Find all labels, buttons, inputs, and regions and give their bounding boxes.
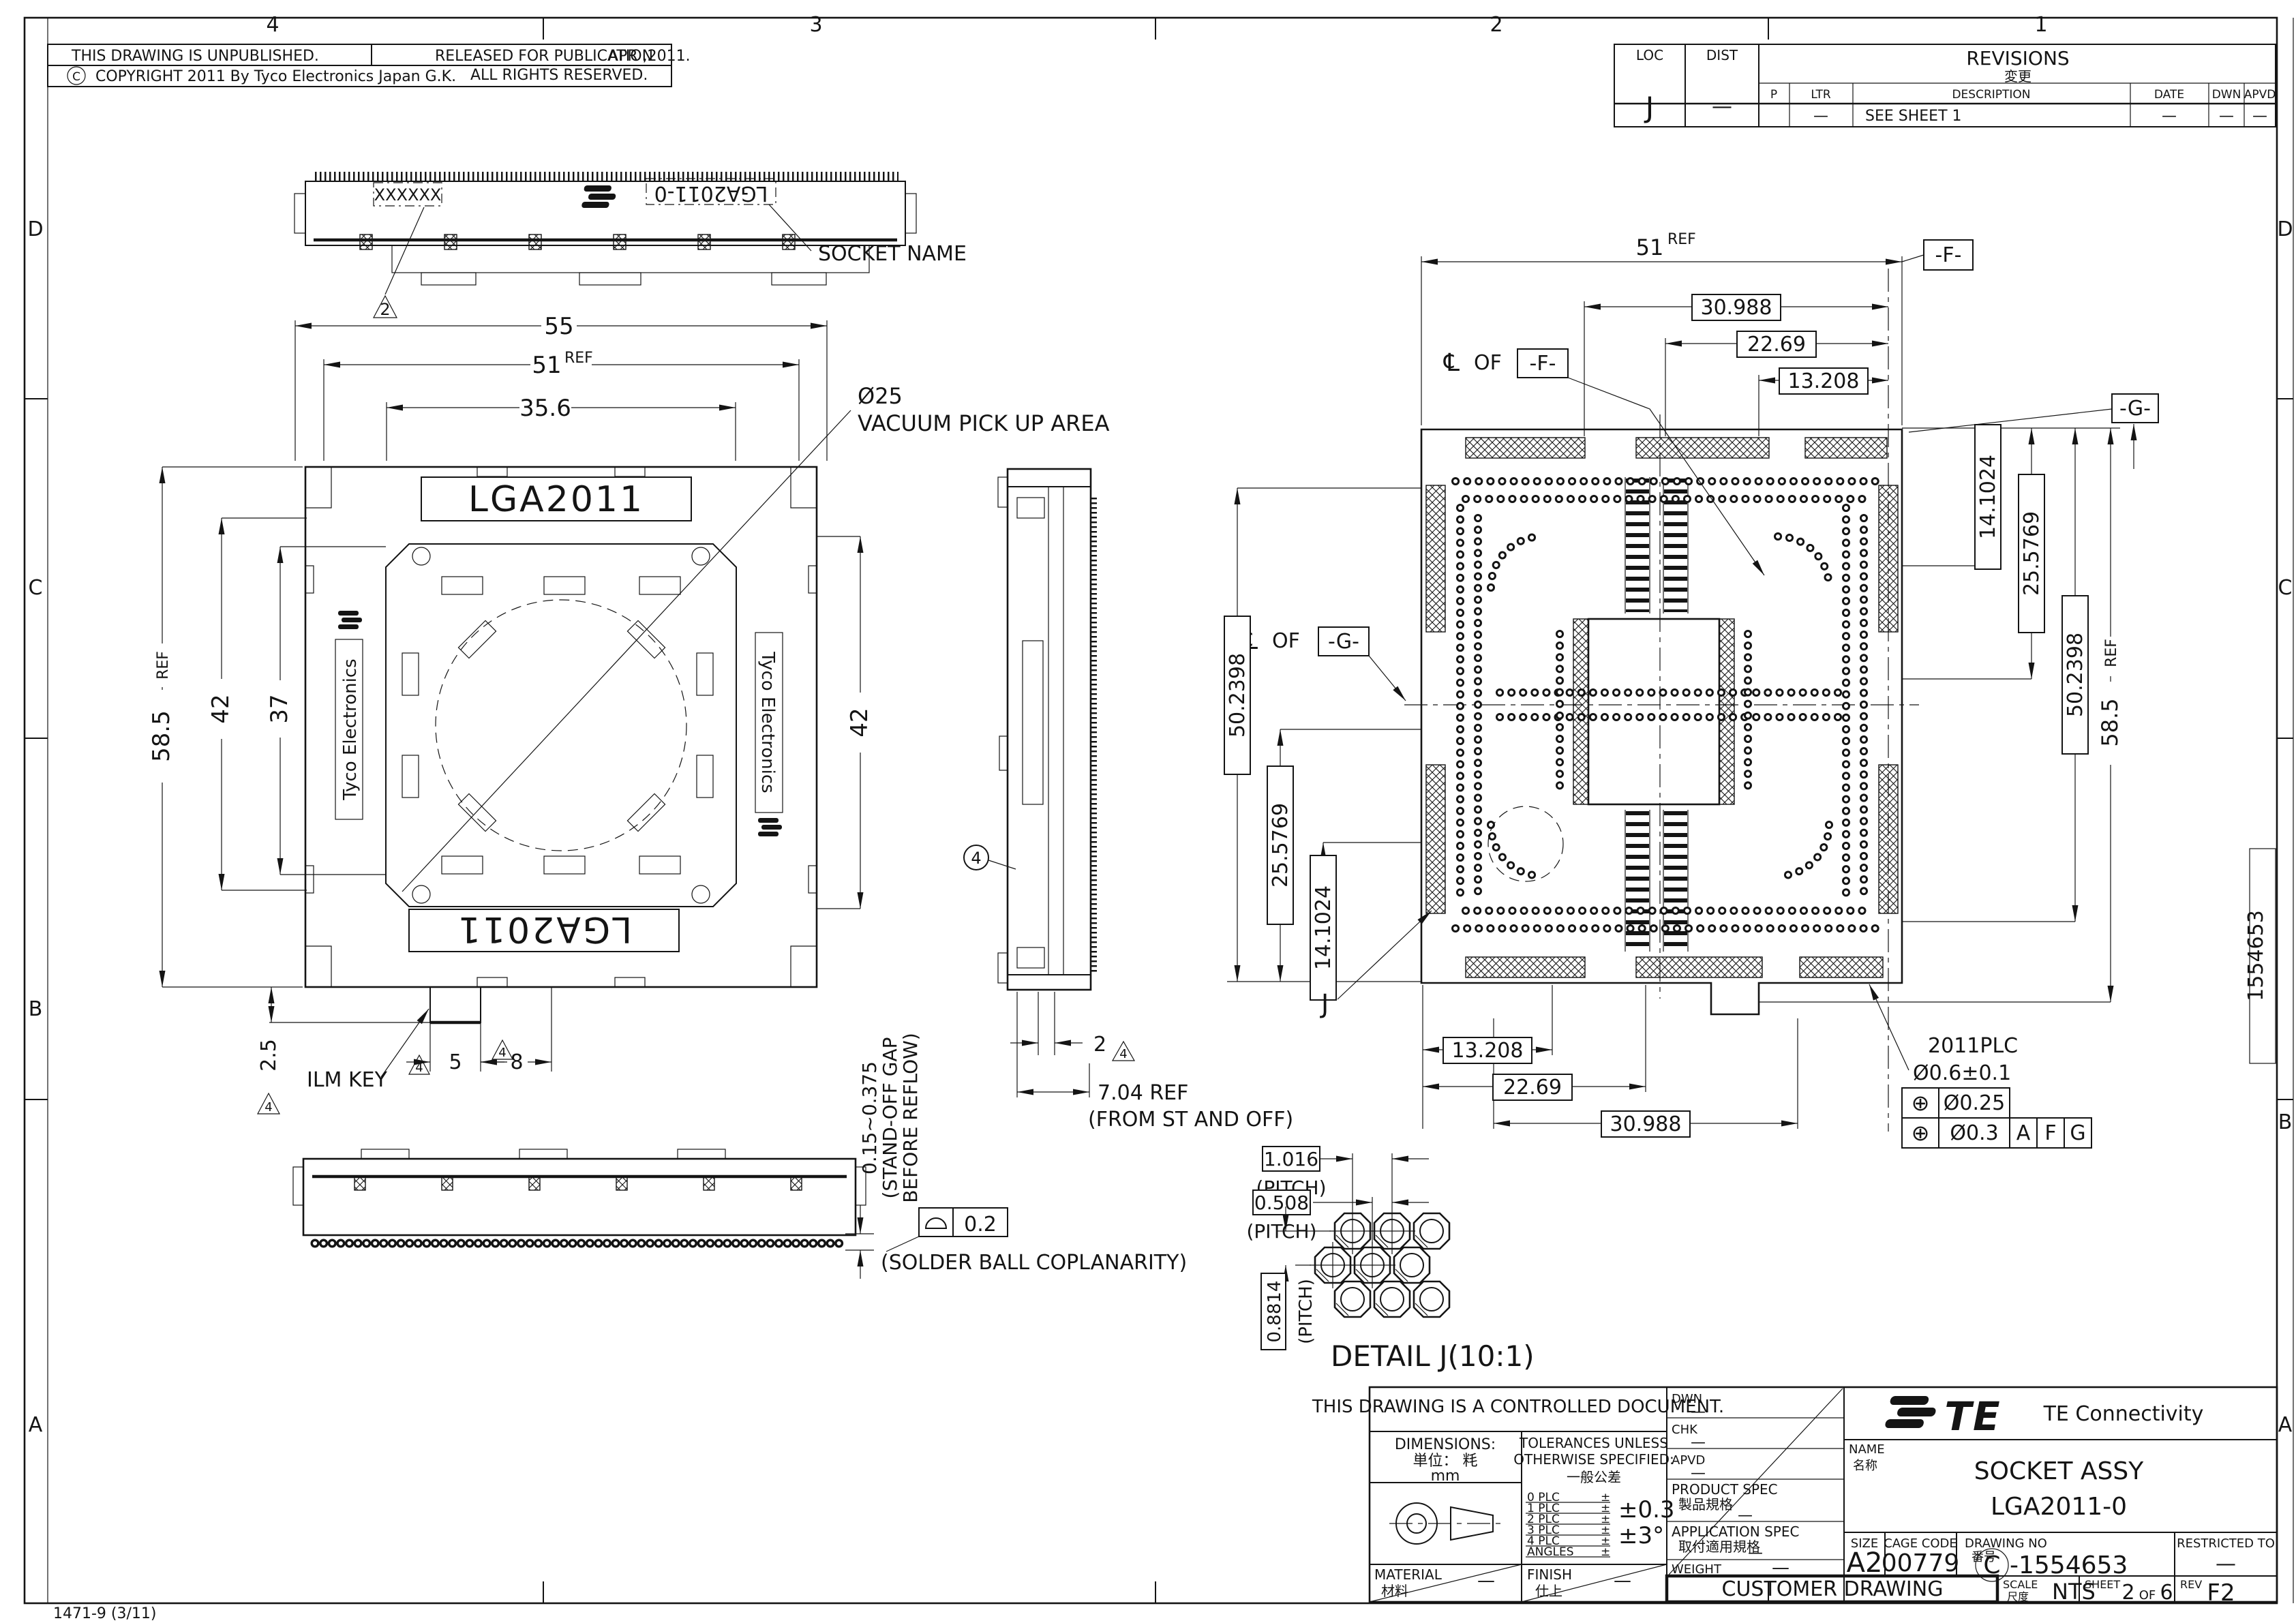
- standoff-range: 0.15~0.375: [858, 1061, 881, 1174]
- restricted-to-value: —: [2216, 1552, 2236, 1576]
- position-fcf: ⊕ Ø0.25 ⊕ Ø0.3 A F G: [1902, 1088, 2091, 1148]
- application-spec-value: —: [1748, 1545, 1763, 1562]
- pin-count-note: 2011PLC: [1928, 1034, 2018, 1058]
- product-spec-value: —: [1738, 1507, 1753, 1524]
- sheet-of: OF: [2139, 1588, 2156, 1603]
- tolerances-line-1: TOLERANCES UNLESS: [1519, 1435, 1668, 1451]
- sheet-number: 2: [2121, 1581, 2134, 1605]
- weight-value: —: [1772, 1558, 1789, 1578]
- pitch-08814: 0.8814: [1265, 1281, 1285, 1343]
- detail-j-pads: [1310, 1208, 1449, 1317]
- view-detail-j: 1.016 (PITCH) 0.508 (PITCH) 0.8814 (PITC…: [1246, 1147, 1534, 1373]
- dim-bottom-width: 51: [1636, 234, 1664, 260]
- dist-value: —: [1712, 95, 1732, 119]
- weight-label: WEIGHT: [1672, 1562, 1722, 1577]
- standoff-note-1: (STAND-OFF GAP: [879, 1037, 901, 1198]
- col-p: P: [1770, 88, 1777, 102]
- rev-row-ltr: —: [1813, 108, 1828, 125]
- zone-right-c: C: [2278, 576, 2293, 600]
- finish-value: —: [1614, 1571, 1631, 1591]
- application-spec-label: APPLICATION SPEC: [1672, 1523, 1799, 1540]
- tolerances-jp: 一般公差: [1567, 1469, 1621, 1485]
- detail-j-title: DETAIL J(10:1): [1331, 1339, 1535, 1373]
- brand-name: TE Connectivity: [2043, 1402, 2204, 1426]
- view-bottom: 51 REF -F- 30.988 22.69 13.208 ℄ OF -F- …: [1224, 231, 2158, 1148]
- revisions-title-jp: 変更: [2004, 68, 2031, 85]
- margin-drawing-number: 1554653: [2244, 910, 2268, 1001]
- datum-ref-f: F: [2044, 1121, 2056, 1145]
- finish-jp: 仕上: [1535, 1583, 1562, 1599]
- zone-left-d: D: [27, 217, 43, 241]
- loc-value: J: [1644, 91, 1654, 124]
- dim-top-13208: 13.208: [1788, 369, 1860, 393]
- dim-overall-width: 55: [544, 313, 573, 340]
- svg-text:±: ±: [1601, 1545, 1610, 1559]
- drawing-no-prefix: C: [1983, 1551, 2000, 1579]
- dwn-value: —: [1691, 1404, 1706, 1421]
- cl-of-g-label: OF: [1272, 629, 1300, 653]
- pitch-1016: 1.016: [1264, 1148, 1318, 1170]
- dim-right-height-42: 42: [846, 708, 873, 737]
- dim-right-502398: 50.2398: [2064, 633, 2087, 717]
- datum-ref-g: G: [2070, 1121, 2085, 1145]
- dim-overall-height: 58.5: [148, 710, 175, 762]
- scale-jp: 尺度: [2007, 1590, 2029, 1603]
- ilm-key-label: ILM KEY: [307, 1068, 388, 1092]
- rev-row-apvd: —: [2252, 108, 2267, 125]
- drawing-canvas: 4 3 2 1 D C B A D C B A 1471-9 (3/11) 15…: [0, 0, 2296, 1623]
- cl-of-f-datum: -F-: [1530, 352, 1556, 376]
- cl-of-f-label: OF: [1474, 351, 1502, 375]
- pitch-label: (PITCH): [1296, 1279, 1316, 1344]
- delta-note-4: 4: [498, 1046, 506, 1060]
- lga-marking-top: LGA2011: [468, 479, 644, 520]
- drawing-no-value: -1554653: [2010, 1551, 2128, 1579]
- datum-f: -F-: [1935, 243, 1962, 267]
- view-front: LGA2011 LGA2011 Tyco Electronics Tyco El…: [148, 313, 1110, 1114]
- copyright-symbol: C: [72, 70, 80, 84]
- controlled-document-note: THIS DRAWING IS A CONTROLLED DOCUMENT.: [1312, 1397, 1724, 1417]
- brand-label-right: Tyco Electronics: [757, 651, 778, 793]
- dim-overall-height-ref: REF: [155, 651, 172, 680]
- dim-bot-30988: 30.988: [1610, 1112, 1682, 1136]
- copyright-note: COPYRIGHT 2011 By Tyco Electronics Japan…: [95, 68, 456, 85]
- datum-g: -G-: [2119, 397, 2151, 421]
- lga-marking-bottom: LGA2011: [456, 909, 632, 950]
- te-logo-icon: [581, 185, 618, 208]
- zone-right-b: B: [2278, 1110, 2293, 1134]
- dim-bot-2269: 22.69: [1503, 1076, 1562, 1099]
- revisions-title: REVISIONS: [1966, 47, 2069, 70]
- coplanarity-note: (SOLDER BALL COPLANARITY): [881, 1251, 1187, 1275]
- dim-body-width: 51: [532, 352, 561, 379]
- zone-left-c: C: [29, 576, 43, 600]
- size-value: A2: [1847, 1547, 1883, 1579]
- delta-note-4: 4: [415, 1061, 423, 1075]
- finish-label: FINISH: [1527, 1566, 1572, 1583]
- rev-value: F2: [2207, 1579, 2235, 1607]
- dim-pin-offset: 2: [1093, 1033, 1106, 1057]
- dim-left-141024: 14.1024: [1312, 885, 1335, 970]
- dim-bottom-width-ref: REF: [1667, 231, 1696, 248]
- dimensions-label: DIMENSIONS:: [1395, 1436, 1496, 1453]
- cl-of-g-datum: -G-: [1328, 630, 1359, 654]
- tol-angle-value: ±3°: [1618, 1522, 1664, 1549]
- view-top-marking: XXXXXX LGA2011-0 SOCKET NAME 2: [294, 177, 967, 319]
- dim-height-42: 42: [207, 694, 235, 723]
- apvd-value: —: [1691, 1465, 1706, 1482]
- product-spec-label: PRODUCT SPEC: [1672, 1481, 1778, 1498]
- col-description: DESCRIPTION: [1952, 88, 2030, 102]
- delta-note-2: 2: [380, 300, 390, 319]
- position-symbol-icon: ⊕: [1912, 1090, 1930, 1116]
- scale-label: SCALE: [2003, 1578, 2038, 1591]
- marking-socket-name: LGA2011-0: [654, 181, 768, 205]
- dim-right-585-ref: REF: [2103, 639, 2120, 667]
- header-block: THIS DRAWING IS UNPUBLISHED. RELEASED FO…: [48, 44, 691, 87]
- dim-left-255769: 25.5769: [1269, 803, 1293, 888]
- form-number: 1471-9 (3/11): [53, 1605, 157, 1622]
- detail-j-ref: J: [1320, 989, 1329, 1019]
- dim-top-30988: 30.988: [1701, 296, 1772, 320]
- col-ltr: LTR: [1811, 88, 1831, 102]
- sheet-label: SHEET: [2085, 1578, 2120, 1591]
- centerline-symbol: ℄: [1443, 349, 1460, 377]
- loc-label: LOC: [1636, 47, 1663, 63]
- rev-row-dwn: —: [2219, 108, 2234, 125]
- dim-key-w1: 5: [449, 1050, 462, 1074]
- te-logo-icon: [338, 611, 362, 629]
- dim-bot-13208: 13.208: [1452, 1039, 1524, 1063]
- col-dwn: DWN: [2212, 88, 2241, 102]
- rev-row-date: —: [2162, 108, 2177, 125]
- part-name-line1: SOCKET ASSY: [1974, 1457, 2144, 1485]
- third-angle-projection-icon: [1389, 1503, 1503, 1544]
- tol-row-5: ANGLES: [1527, 1545, 1574, 1559]
- dim-pick-width: 35.6: [519, 395, 571, 422]
- zone-right-a: A: [2278, 1413, 2293, 1437]
- rights-note: ALL RIGHTS RESERVED.: [470, 67, 648, 84]
- dimensions-unit: mm: [1431, 1468, 1460, 1485]
- material-label: MATERIAL: [1374, 1566, 1442, 1583]
- dim-key-height: 2.5: [257, 1039, 281, 1072]
- zone-top-2: 2: [1490, 13, 1502, 37]
- te-logo-text: TE: [1944, 1393, 2001, 1440]
- dim-standoff: 7.04 REF: [1098, 1081, 1188, 1105]
- col-date: DATE: [2154, 88, 2184, 102]
- zone-top-1: 1: [2034, 13, 2047, 37]
- datum-ref-a: A: [2016, 1121, 2031, 1145]
- dim-height-37: 37: [266, 694, 293, 723]
- coplanarity-value: 0.2: [964, 1213, 997, 1237]
- customer-drawing-label: CUSTOMER DRAWING: [1722, 1577, 1944, 1601]
- material-value: —: [1477, 1571, 1495, 1591]
- dim-standoff-note: (FROM ST AND OFF): [1088, 1108, 1293, 1132]
- zone-top-4: 4: [266, 13, 279, 37]
- brand-label-left: Tyco Electronics: [340, 658, 361, 800]
- zone-left-b: B: [29, 997, 43, 1021]
- te-logo: TE: [1884, 1393, 2001, 1440]
- col-apvd: APVD: [2244, 88, 2276, 102]
- te-logo-icon: [758, 818, 782, 836]
- restricted-to-label: RESTRICTED TO: [2177, 1536, 2275, 1551]
- dim-body-width-ref: REF: [564, 350, 593, 367]
- dim-left-502398: 50.2398: [1226, 653, 1250, 738]
- dim-right-255769: 25.5769: [2020, 511, 2044, 596]
- pitch-0508: 0.508: [1254, 1192, 1309, 1214]
- title-block: THIS DRAWING IS A CONTROLLED DOCUMENT. D…: [1312, 1387, 2277, 1607]
- position-tol-2: Ø0.3: [1950, 1121, 1998, 1145]
- delta-note-4: 4: [265, 1100, 272, 1114]
- view-side: 4 2 4 7.04 REF (FROM ST AND OFF): [964, 469, 1293, 1132]
- material-jp: 材料: [1381, 1583, 1408, 1599]
- zone-right-d: D: [2277, 217, 2293, 241]
- tol-general-value: ±0.3: [1618, 1496, 1675, 1523]
- position-tol-1: Ø0.25: [1944, 1091, 2005, 1115]
- rev-label: REV: [2180, 1578, 2202, 1591]
- rev-row-description: SEE SHEET 1: [1865, 108, 1962, 125]
- unpublished-note: THIS DRAWING IS UNPUBLISHED.: [71, 48, 319, 65]
- revisions-block: LOC J DIST — REVISIONS 変更 P LTR DESCRIPT…: [1614, 44, 2276, 127]
- dim-right-585: 58.5: [2097, 698, 2123, 746]
- dim-top-2269: 22.69: [1747, 333, 1806, 357]
- zone-top-3: 3: [809, 13, 822, 37]
- release-date: APR ,2011.: [608, 48, 691, 65]
- balloon-4: 4: [971, 849, 981, 868]
- part-name-line2: LGA2011-0: [1991, 1493, 2127, 1521]
- chk-value: —: [1691, 1434, 1706, 1451]
- drawing-no-label: DRAWING NO: [1965, 1536, 2047, 1551]
- position-symbol-icon: ⊕: [1912, 1120, 1930, 1146]
- pick-dia-label: Ø25: [858, 383, 903, 409]
- cage-code-label: CAGE CODE: [1884, 1536, 1957, 1551]
- hole-size-note: Ø0.6±0.1: [1913, 1061, 2011, 1085]
- name-jp: 名称: [1853, 1459, 1877, 1473]
- center-cavity: [1588, 619, 1719, 804]
- sheet-total: 6: [2160, 1581, 2173, 1605]
- name-label: NAME: [1849, 1442, 1885, 1457]
- product-spec-jp: 製品規格: [1678, 1496, 1733, 1513]
- tolerances-line-2: OTHERWISE SPECIFIED:: [1513, 1451, 1674, 1468]
- pick-area-label: VACUUM PICK UP AREA: [858, 410, 1110, 436]
- dist-label: DIST: [1706, 47, 1738, 63]
- zone-left-a: A: [29, 1413, 43, 1437]
- cage-code-value: 00779: [1882, 1549, 1960, 1577]
- dim-key-w2: 8: [510, 1050, 523, 1074]
- marking-xxxxxx: XXXXXX: [374, 185, 442, 204]
- vacuum-pick-area-circle: [436, 600, 686, 851]
- socket-name-label: SOCKET NAME: [818, 242, 967, 266]
- drawing-sheet: 4 3 2 1 D C B A D C B A 1471-9 (3/11) 15…: [0, 0, 2296, 1623]
- delta-note-4: 4: [1119, 1047, 1127, 1061]
- dim-right-141024: 14.1024: [1976, 455, 2000, 539]
- standoff-note-2: BEFORE REFLOW): [899, 1033, 922, 1203]
